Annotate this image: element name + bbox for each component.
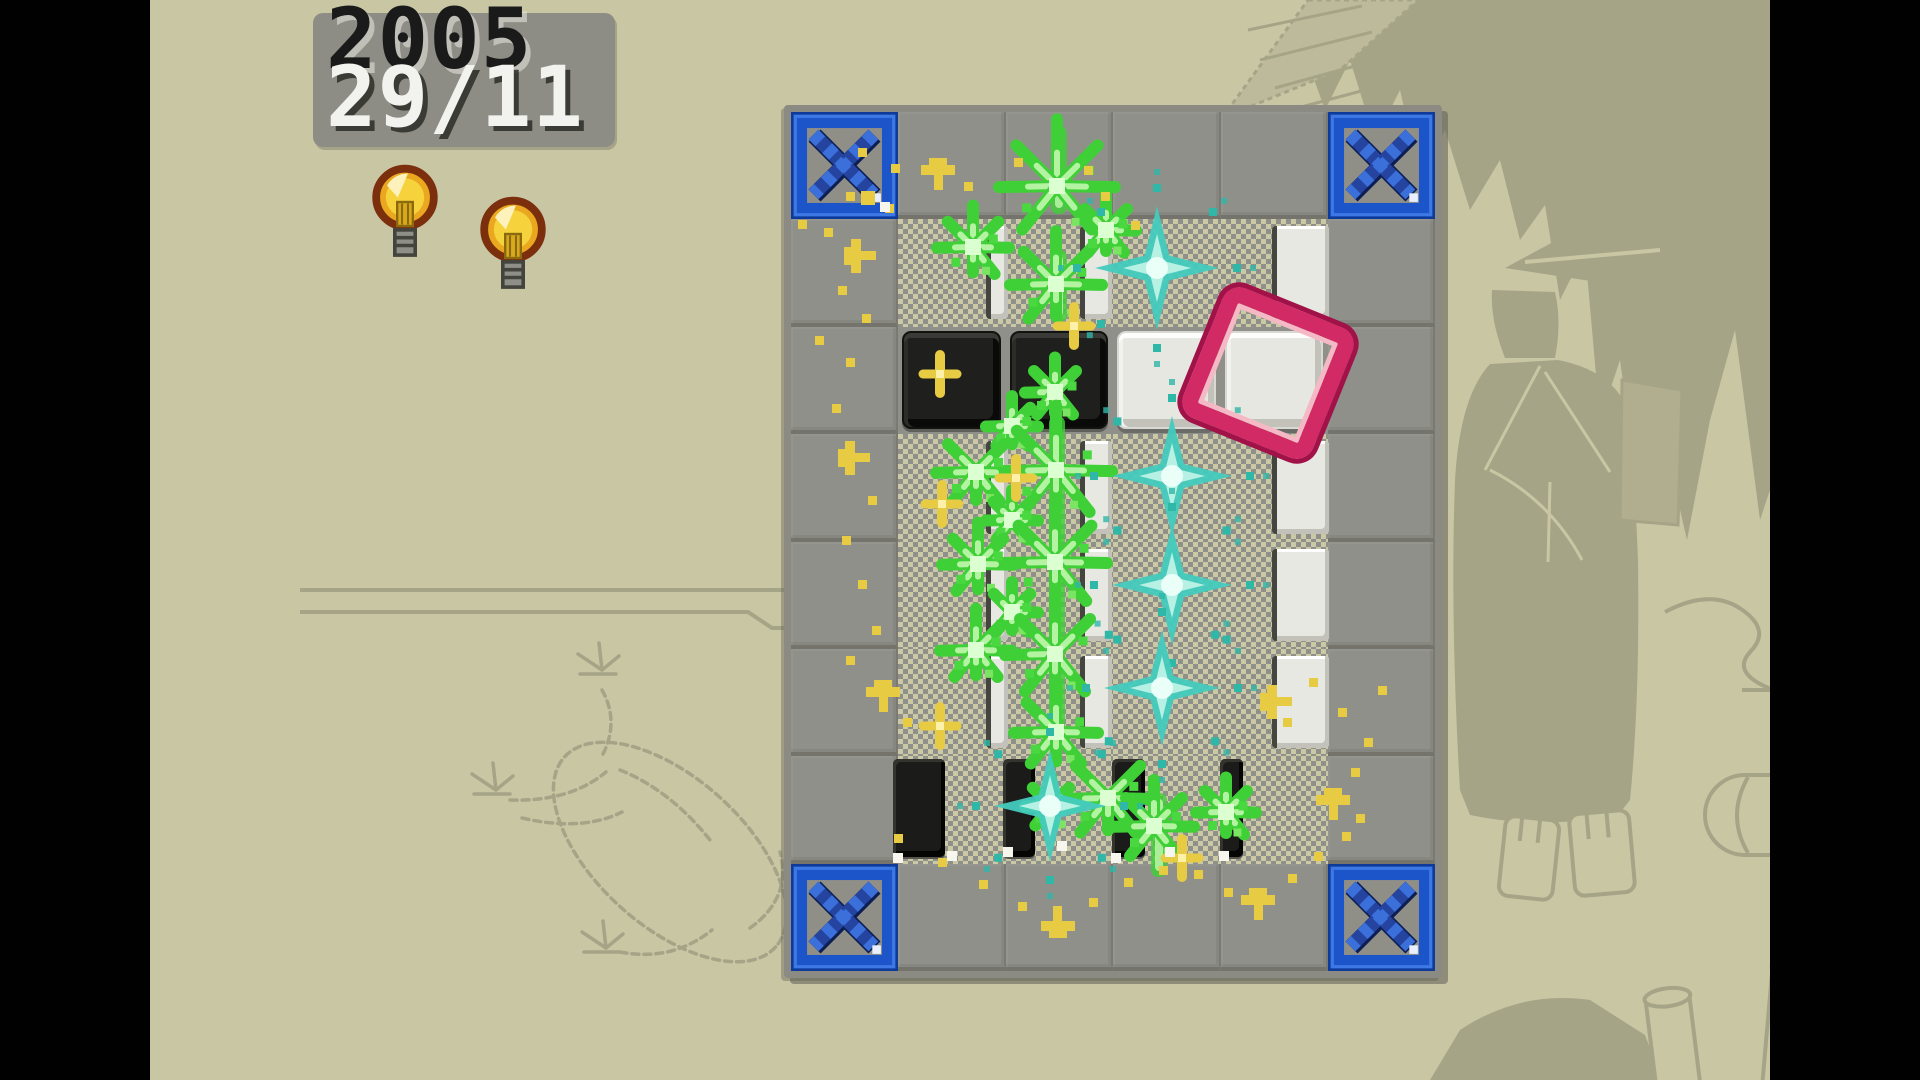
board-cell-dissolving[interactable]	[1113, 434, 1221, 542]
white-tile-flipping[interactable]	[986, 441, 1008, 534]
white-tile-flipping[interactable]	[1272, 656, 1329, 748]
white-tile-flipping[interactable]	[1080, 441, 1112, 534]
corner-x-tile	[1328, 112, 1435, 219]
light-bulb-icon	[480, 196, 546, 293]
corner-x-tile	[791, 112, 898, 219]
bamboo-art	[1430, 957, 1818, 1080]
board-border-tile	[791, 219, 898, 327]
score-panel: 2005 29/11	[313, 13, 615, 147]
fisherman-art	[1453, 170, 1730, 901]
board-border-tile	[791, 542, 898, 649]
horizon-lines	[300, 590, 790, 628]
frog-art	[472, 643, 825, 1002]
x-icon	[791, 864, 898, 971]
board-border-tile	[1006, 112, 1113, 219]
black-tile-flipping[interactable]	[1003, 759, 1035, 857]
white-tile-flipping[interactable]	[1272, 549, 1329, 641]
board-border-tile	[791, 327, 898, 434]
letterbox-left	[0, 0, 150, 1080]
puzzle-date: 29/11	[326, 55, 584, 139]
board-border-tile	[791, 756, 898, 864]
board-cell-dissolving[interactable]	[1113, 542, 1221, 649]
board-border-tile	[1328, 219, 1435, 327]
white-tile-flipping[interactable]	[986, 226, 1008, 319]
letterbox-right	[1770, 0, 1920, 1080]
x-icon	[1328, 112, 1435, 219]
stage: 2005 29/11	[0, 0, 1920, 1080]
black-tile-flipping[interactable]	[893, 759, 945, 857]
white-tile-flipping[interactable]	[1080, 226, 1112, 319]
board-cell-dissolving[interactable]	[1113, 649, 1221, 756]
hint-bulb	[480, 196, 546, 293]
board-border-tile	[1328, 649, 1435, 756]
black-tile[interactable]	[1010, 331, 1108, 429]
board-border-tile	[1221, 112, 1328, 219]
board-border-tile	[1328, 434, 1435, 542]
palm-frond-art	[1222, 0, 1418, 118]
game-screen: 2005 29/11	[150, 0, 1770, 1080]
x-icon	[1328, 864, 1435, 971]
black-tile-flipping[interactable]	[1112, 759, 1145, 857]
black-tile[interactable]	[902, 331, 1001, 429]
board-border-tile	[1113, 864, 1221, 971]
board-border-tile	[1006, 864, 1113, 971]
white-tile-flipping[interactable]	[1080, 549, 1112, 641]
white-tile-flipping[interactable]	[1080, 656, 1112, 748]
corner-x-tile	[1328, 864, 1435, 971]
white-tile-flipping[interactable]	[986, 549, 1008, 641]
board-border-tile	[1328, 542, 1435, 649]
board-border-tile	[1221, 864, 1328, 971]
hint-bulb	[372, 164, 438, 261]
board-border-tile	[791, 434, 898, 542]
corner-x-tile	[791, 864, 898, 971]
light-bulb-icon	[372, 164, 438, 261]
game-board[interactable]	[784, 105, 1442, 978]
board-border-tile	[898, 112, 1006, 219]
x-icon	[791, 112, 898, 219]
white-tile-flipping[interactable]	[986, 656, 1008, 748]
black-tile-flipping[interactable]	[1220, 759, 1243, 857]
board-border-tile	[898, 864, 1006, 971]
board-border-tile	[1328, 756, 1435, 864]
board-border-tile	[791, 649, 898, 756]
board-border-tile	[1113, 112, 1221, 219]
board-cell-dissolving[interactable]	[1113, 219, 1221, 327]
sandals-art	[1498, 810, 1635, 901]
